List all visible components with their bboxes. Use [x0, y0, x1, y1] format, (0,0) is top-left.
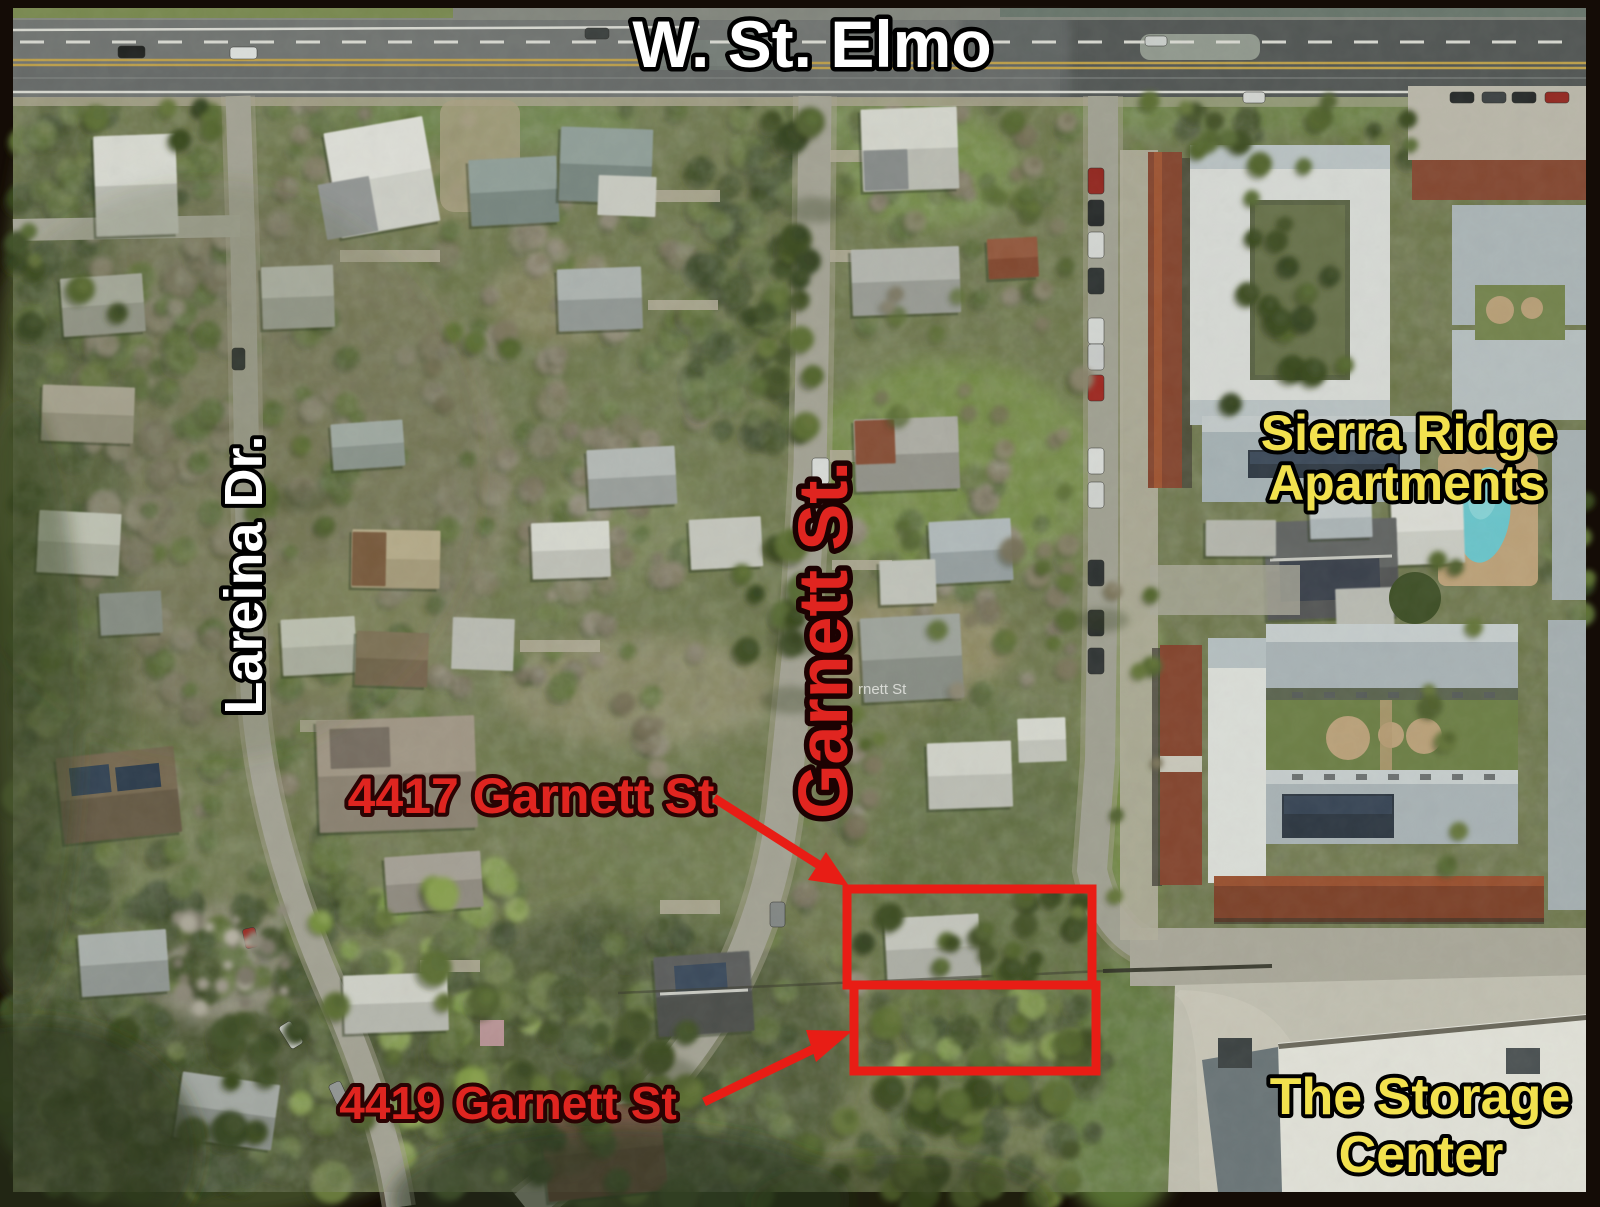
svg-text:Garnett St.: Garnett St. — [784, 461, 862, 819]
svg-text:4417 Garnett St: 4417 Garnett St — [348, 768, 715, 824]
svg-text:rnett St: rnett St — [858, 681, 907, 698]
svg-text:Apartments: Apartments — [1268, 455, 1546, 511]
svg-text:W. St. Elmo: W. St. Elmo — [632, 7, 991, 81]
svg-text:Sierra Ridge: Sierra Ridge — [1261, 405, 1556, 461]
svg-text:Center: Center — [1339, 1126, 1504, 1184]
svg-text:Lareina Dr.: Lareina Dr. — [214, 435, 274, 714]
svg-text:The Storage: The Storage — [1270, 1068, 1571, 1126]
svg-text:4419 Garnett St: 4419 Garnett St — [339, 1077, 676, 1129]
